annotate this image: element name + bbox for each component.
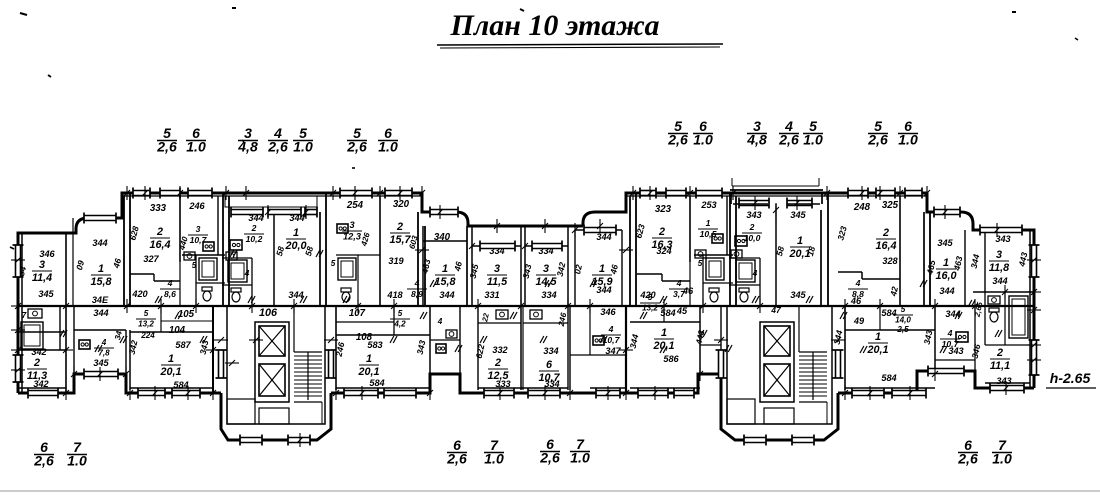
svg-text:20,1: 20,1 [159, 366, 181, 378]
svg-text:253: 253 [700, 200, 716, 210]
svg-text:1: 1 [293, 227, 299, 239]
svg-text:2,6: 2,6 [446, 451, 467, 467]
svg-text:1: 1 [706, 218, 711, 228]
svg-text:11,1: 11,1 [990, 360, 1010, 372]
svg-text:6: 6 [546, 359, 553, 371]
svg-text:343: 343 [948, 346, 963, 356]
svg-text:45: 45 [676, 306, 688, 316]
svg-text:584: 584 [881, 308, 896, 318]
svg-text:14,5: 14,5 [535, 276, 557, 288]
svg-text:2: 2 [882, 227, 889, 239]
svg-text:104: 104 [169, 325, 186, 336]
svg-text:10,0: 10,0 [744, 233, 761, 243]
svg-text:5: 5 [901, 305, 906, 314]
svg-text:420: 420 [131, 289, 148, 299]
svg-text:2: 2 [396, 221, 403, 233]
svg-text:4: 4 [414, 278, 420, 288]
svg-text:345: 345 [790, 210, 806, 220]
svg-text:1: 1 [168, 353, 174, 365]
svg-text:3: 3 [39, 259, 45, 271]
svg-text:3: 3 [996, 249, 1002, 261]
svg-text:16,0: 16,0 [935, 270, 956, 282]
svg-text:4: 4 [437, 317, 443, 326]
svg-text:343: 343 [746, 210, 761, 220]
svg-text:2,6: 2,6 [539, 450, 560, 466]
svg-text:324: 324 [656, 246, 671, 256]
svg-text:7,8: 7,8 [98, 349, 110, 358]
svg-text:347: 347 [605, 346, 621, 356]
svg-text:1: 1 [599, 263, 605, 275]
svg-text:1: 1 [943, 257, 949, 269]
svg-text:46: 46 [682, 286, 694, 296]
svg-text:224: 224 [140, 331, 155, 340]
svg-text:345: 345 [937, 238, 953, 248]
svg-text:2: 2 [156, 226, 163, 238]
svg-text:3: 3 [349, 220, 354, 230]
svg-text:246: 246 [188, 201, 205, 211]
svg-text:344: 344 [596, 232, 611, 242]
svg-text:327: 327 [143, 254, 159, 264]
svg-text:586: 586 [663, 354, 679, 364]
svg-text:328: 328 [882, 256, 898, 266]
svg-text:2,5: 2,5 [896, 325, 909, 334]
svg-text:8,9: 8,9 [411, 289, 423, 299]
svg-text:4: 4 [855, 278, 861, 288]
svg-text:334: 334 [541, 290, 556, 300]
svg-text:1.0: 1.0 [484, 451, 504, 467]
svg-text:h-2.65: h-2.65 [1050, 370, 1091, 386]
svg-text:1.0: 1.0 [186, 139, 206, 155]
svg-text:1: 1 [98, 263, 104, 275]
svg-text:334: 334 [543, 346, 558, 356]
svg-text:5: 5 [398, 309, 403, 318]
svg-text:5: 5 [192, 261, 197, 270]
svg-text:1: 1 [797, 235, 803, 247]
svg-text:4: 4 [167, 278, 173, 288]
svg-text:2,6: 2,6 [867, 132, 888, 148]
svg-text:2,6: 2,6 [778, 132, 799, 148]
svg-text:345: 345 [93, 358, 109, 368]
svg-text:1.0: 1.0 [570, 450, 590, 466]
svg-text:1.0: 1.0 [293, 139, 313, 155]
svg-text:2,6: 2,6 [667, 132, 688, 148]
svg-text:320: 320 [393, 199, 410, 210]
svg-text:1.0: 1.0 [693, 132, 713, 148]
svg-text:4: 4 [608, 324, 614, 334]
svg-text:10,7: 10,7 [190, 235, 208, 245]
svg-text:344: 344 [596, 285, 611, 295]
svg-text:20,1: 20,1 [357, 366, 379, 378]
svg-text:345: 345 [790, 290, 806, 300]
svg-text:5: 5 [698, 259, 703, 268]
svg-text:587: 587 [175, 340, 191, 350]
svg-text:2,6: 2,6 [957, 451, 978, 467]
svg-text:План 10 этажа: План 10 этажа [450, 9, 660, 42]
svg-text:2,6: 2,6 [156, 139, 177, 155]
svg-text:107: 107 [349, 308, 366, 319]
svg-text:5: 5 [144, 309, 149, 318]
svg-text:2,6: 2,6 [267, 139, 288, 155]
svg-text:344: 344 [939, 286, 954, 296]
svg-text:4: 4 [752, 269, 758, 278]
svg-text:16,4: 16,4 [149, 239, 170, 251]
svg-text:11,8: 11,8 [989, 262, 1009, 274]
svg-text:346: 346 [39, 249, 55, 259]
svg-text:344: 344 [992, 276, 1007, 286]
svg-text:344: 344 [92, 238, 107, 248]
svg-text:11,5: 11,5 [487, 276, 508, 288]
svg-text:343: 343 [996, 376, 1011, 386]
svg-text:1: 1 [366, 353, 372, 365]
svg-text:584: 584 [660, 308, 675, 318]
svg-text:248: 248 [853, 202, 871, 213]
svg-text:1.0: 1.0 [378, 139, 398, 155]
svg-text:343: 343 [995, 234, 1010, 244]
svg-text:342: 342 [31, 347, 47, 357]
svg-text:1: 1 [442, 263, 448, 275]
svg-text:344: 344 [439, 290, 454, 300]
svg-text:418: 418 [386, 290, 403, 300]
svg-text:344: 344 [93, 308, 108, 318]
svg-text:323: 323 [655, 204, 672, 215]
svg-text:2: 2 [33, 357, 40, 369]
svg-text:2: 2 [749, 222, 755, 232]
svg-text:332: 332 [492, 345, 508, 355]
svg-text:2: 2 [251, 223, 257, 233]
svg-text:325: 325 [882, 200, 899, 211]
svg-text:3: 3 [196, 224, 201, 234]
svg-text:2,6: 2,6 [346, 139, 367, 155]
svg-text:319: 319 [388, 256, 404, 266]
svg-text:106: 106 [259, 307, 278, 319]
svg-text:4,2: 4,2 [393, 320, 406, 329]
svg-text:346: 346 [600, 307, 616, 317]
svg-text:11,4: 11,4 [32, 272, 52, 284]
svg-text:15,8: 15,8 [90, 276, 111, 288]
svg-text:13,2: 13,2 [138, 320, 154, 329]
svg-text:1.0: 1.0 [898, 132, 918, 148]
svg-text:20,1: 20,1 [866, 344, 888, 356]
svg-text:16,4: 16,4 [875, 240, 896, 252]
svg-text:4: 4 [947, 328, 953, 338]
svg-text:3: 3 [494, 263, 500, 275]
svg-text:46: 46 [850, 296, 862, 306]
svg-text:49: 49 [853, 316, 865, 326]
svg-text:15,8: 15,8 [434, 276, 455, 288]
svg-text:5: 5 [331, 259, 336, 268]
svg-text:4,8: 4,8 [746, 132, 767, 148]
svg-text:3: 3 [543, 263, 549, 275]
svg-text:13,2: 13,2 [642, 304, 658, 313]
svg-text:1: 1 [875, 331, 881, 343]
svg-text:333: 333 [150, 203, 167, 214]
svg-text:1.0: 1.0 [803, 132, 823, 148]
svg-text:47: 47 [770, 305, 782, 315]
svg-text:340: 340 [434, 232, 451, 243]
svg-text:254: 254 [346, 200, 364, 211]
svg-text:4: 4 [676, 278, 682, 288]
svg-text:5: 5 [648, 293, 653, 302]
svg-text:1.0: 1.0 [992, 451, 1012, 467]
svg-text:584: 584 [881, 373, 896, 383]
svg-text:4,8: 4,8 [237, 139, 258, 155]
svg-text:2: 2 [996, 347, 1003, 359]
svg-text:2: 2 [494, 357, 501, 369]
svg-text:8,6: 8,6 [164, 289, 176, 299]
svg-text:4: 4 [244, 269, 250, 278]
svg-text:1: 1 [661, 327, 667, 339]
svg-text:2,6: 2,6 [33, 453, 54, 469]
svg-text:10,2: 10,2 [246, 234, 263, 244]
svg-text:344: 344 [288, 290, 303, 300]
svg-text:583: 583 [367, 340, 382, 350]
svg-text:345: 345 [38, 289, 54, 299]
svg-text:1.0: 1.0 [67, 453, 87, 469]
svg-text:2: 2 [658, 226, 665, 238]
svg-text:331: 331 [484, 290, 499, 300]
svg-text:34Е: 34Е [92, 295, 109, 305]
svg-text:14,0: 14,0 [895, 316, 911, 325]
svg-text:584: 584 [369, 378, 384, 388]
